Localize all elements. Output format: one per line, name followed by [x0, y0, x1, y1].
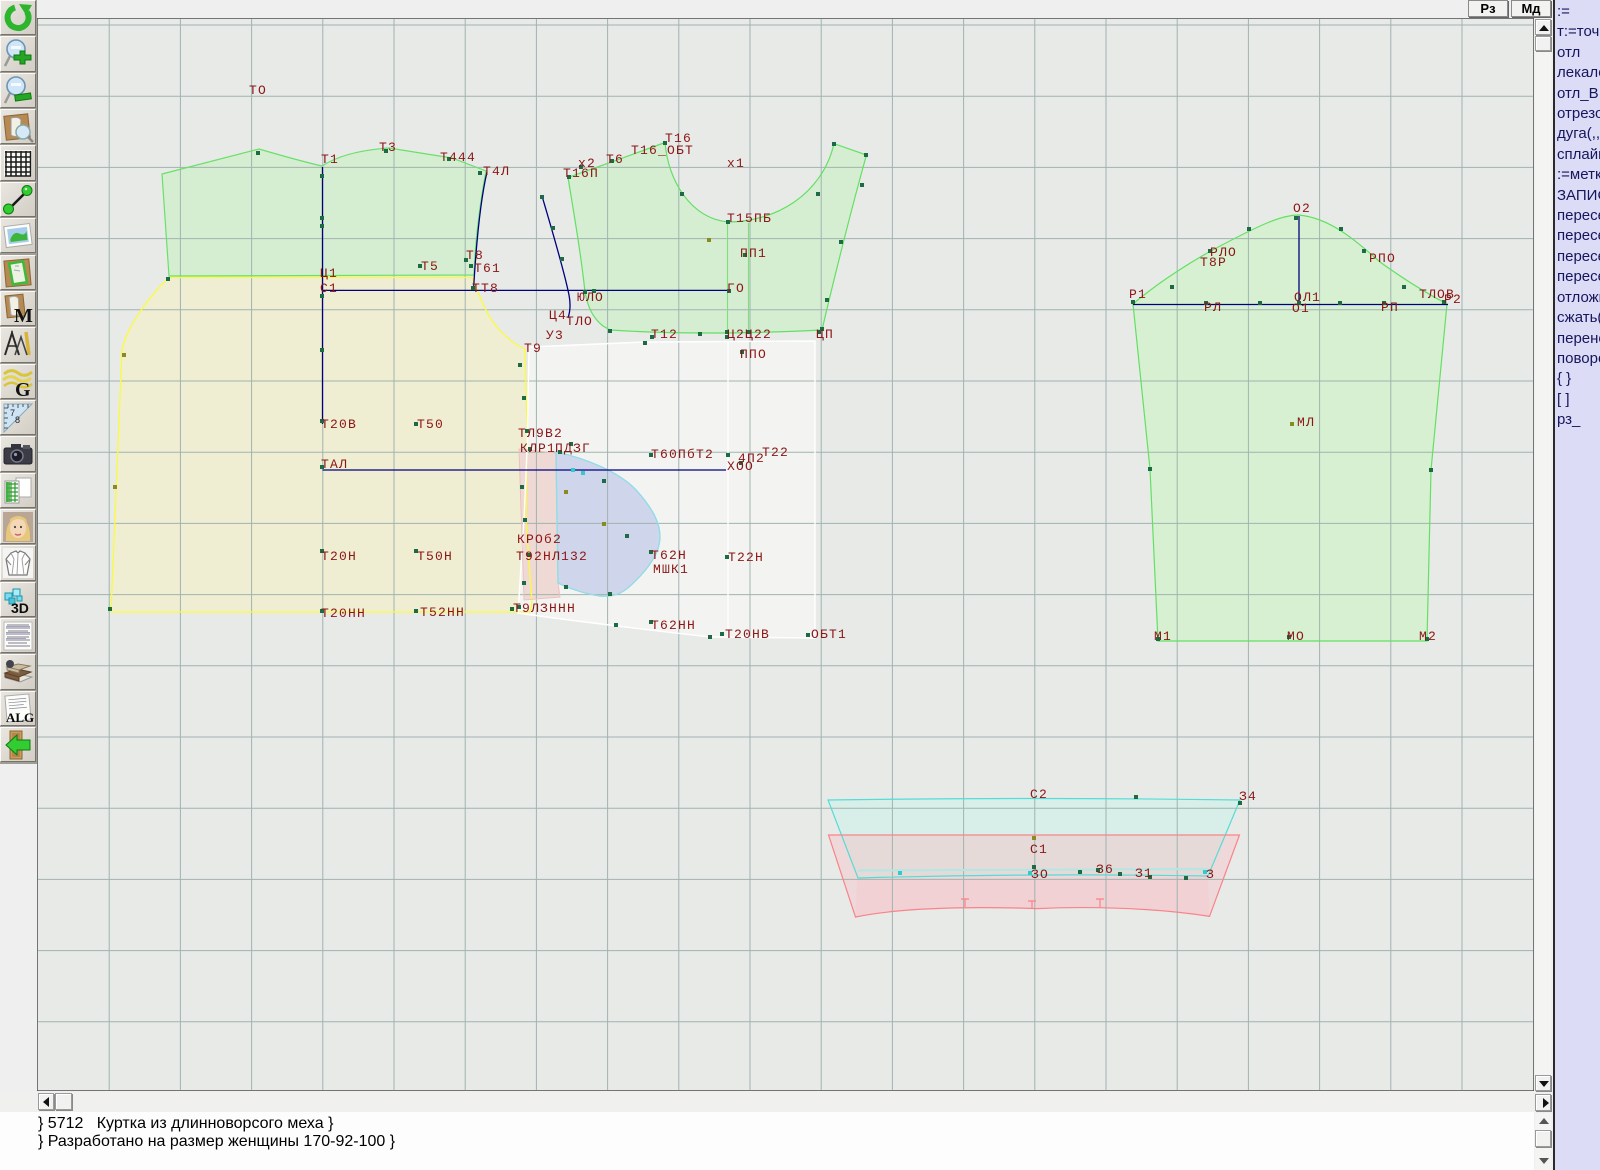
- svg-text:У3: У3: [546, 328, 564, 343]
- svg-text:М2: М2: [1419, 629, 1437, 644]
- svg-text:ППО: ППО: [740, 347, 767, 362]
- svg-text:Т15ПБ: Т15ПБ: [727, 211, 772, 226]
- svg-text:Т8Р: Т8Р: [1200, 255, 1227, 270]
- svg-text:Т62НН: Т62НН: [651, 618, 696, 633]
- svg-text:РЛ: РЛ: [1204, 300, 1222, 315]
- svg-text:ТЛ9В2: ТЛ9В2: [518, 426, 563, 441]
- svg-text:ТЛО: ТЛО: [566, 314, 593, 329]
- svg-text:Р2: Р2: [1444, 292, 1462, 307]
- svg-text:З4: З4: [1239, 789, 1257, 804]
- svg-text:Т444: Т444: [440, 150, 476, 165]
- svg-text:Т22: Т22: [762, 445, 789, 460]
- svg-text:Т20Н: Т20Н: [321, 549, 357, 564]
- svg-text:М1: М1: [1154, 629, 1172, 644]
- svg-text:ЗО: ЗО: [1031, 867, 1049, 882]
- svg-text:Т52НН: Т52НН: [420, 605, 465, 620]
- svg-text:Т20В: Т20В: [321, 417, 357, 432]
- svg-text:КЛР1: КЛР1: [520, 441, 556, 456]
- svg-text:Т60ПбТ2: Т60ПбТ2: [651, 447, 714, 462]
- svg-text:ХОО: ХОО: [727, 459, 754, 474]
- svg-text:Т3: Т3: [379, 140, 397, 155]
- svg-text:ALG: ALG: [6, 710, 34, 725]
- svg-text:8: 8: [15, 415, 20, 425]
- svg-text:3D: 3D: [11, 600, 29, 616]
- svg-text:Т16_ОБТ: Т16_ОБТ: [631, 143, 694, 158]
- svg-text:О1: О1: [1292, 301, 1310, 316]
- svg-text:Т4Л: Т4Л: [483, 164, 510, 179]
- svg-text:Т50: Т50: [417, 417, 444, 432]
- svg-text:РПО: РПО: [1369, 251, 1396, 266]
- svg-text:МЛ: МЛ: [1297, 415, 1315, 430]
- svg-text:Ц4: Ц4: [549, 308, 567, 323]
- svg-text:РП: РП: [1381, 300, 1399, 315]
- svg-text:Т62Н: Т62Н: [651, 548, 687, 563]
- svg-text:З6: З6: [1096, 862, 1114, 877]
- svg-text:Т20НН: Т20НН: [321, 606, 366, 621]
- svg-text:З: З: [1206, 867, 1215, 882]
- svg-text:ЦП: ЦП: [816, 327, 834, 342]
- svg-text:Ц2Ц22: Ц2Ц22: [727, 327, 772, 342]
- svg-text:Т61: Т61: [474, 261, 501, 276]
- svg-text:ТАЛ: ТАЛ: [321, 457, 348, 472]
- svg-text:ПДЗГ: ПДЗГ: [555, 441, 591, 456]
- svg-text:МШК1: МШК1: [653, 562, 689, 577]
- svg-text:З1: З1: [1135, 866, 1153, 881]
- svg-text:ПП1: ПП1: [740, 246, 767, 261]
- svg-text:Т22Н: Т22Н: [728, 550, 764, 565]
- svg-text:С1: С1: [320, 281, 338, 296]
- svg-text:х1: х1: [727, 156, 745, 171]
- svg-text:M: M: [14, 305, 33, 325]
- svg-text:Т9: Т9: [524, 341, 542, 356]
- svg-text:МО: МО: [1287, 629, 1305, 644]
- svg-text:Р1: Р1: [1129, 287, 1147, 302]
- svg-text:Т12: Т12: [651, 327, 678, 342]
- svg-text:О2: О2: [1293, 201, 1311, 216]
- svg-text:С2: С2: [1030, 787, 1048, 802]
- svg-text:Т16П: Т16П: [563, 166, 599, 181]
- svg-text:ТТ8: ТТ8: [472, 281, 499, 296]
- svg-text:Т92НЛ132: Т92НЛ132: [516, 549, 588, 564]
- svg-text:Ц1: Ц1: [320, 266, 338, 281]
- svg-text:ТО: ТО: [249, 83, 267, 98]
- svg-text:Т5: Т5: [421, 259, 439, 274]
- svg-text:Т50Н: Т50Н: [417, 549, 453, 564]
- svg-text:ЮЛО: ЮЛО: [577, 290, 604, 305]
- svg-text:Т9ЛЗННН: Т9ЛЗННН: [513, 601, 576, 616]
- svg-text:Т6: Т6: [606, 152, 624, 167]
- svg-text:G: G: [15, 379, 31, 398]
- svg-text:Т20НВ: Т20НВ: [725, 627, 770, 642]
- svg-text:С1: С1: [1030, 842, 1048, 857]
- svg-text:КРОб2: КРОб2: [517, 532, 562, 547]
- svg-text:ОБТ1: ОБТ1: [811, 627, 847, 642]
- svg-text:Т1: Т1: [321, 152, 339, 167]
- svg-text:ГО: ГО: [727, 281, 745, 296]
